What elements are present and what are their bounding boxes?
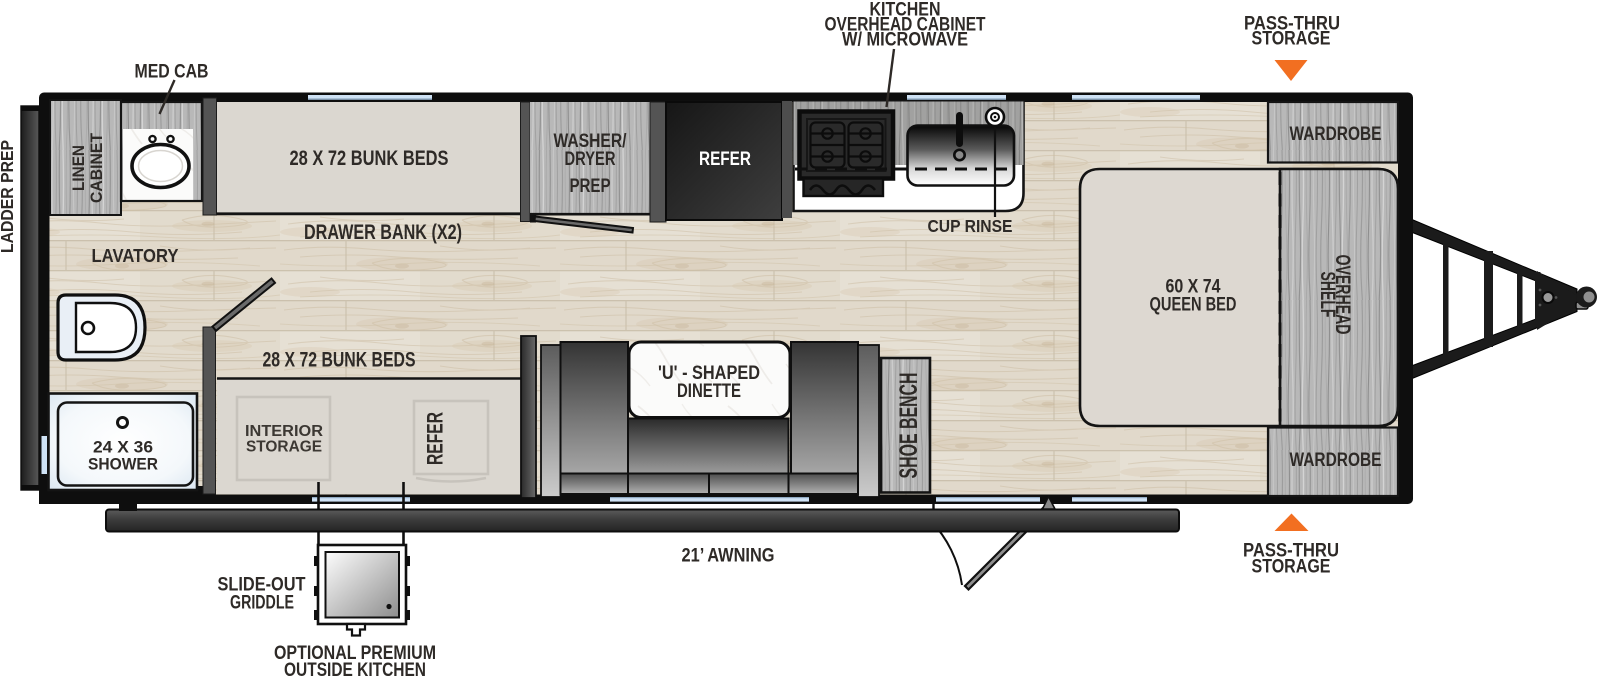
svg-text:LAVATORY: LAVATORY bbox=[92, 245, 180, 266]
svg-text:REFER: REFER bbox=[423, 412, 448, 465]
svg-text:PREP: PREP bbox=[570, 176, 611, 197]
svg-text:WARDROBE: WARDROBE bbox=[1290, 124, 1382, 145]
svg-text:MED CAB: MED CAB bbox=[135, 62, 209, 83]
svg-text:GRIDDLE: GRIDDLE bbox=[230, 593, 294, 614]
svg-text:CABINET: CABINET bbox=[87, 132, 106, 203]
svg-text:SHELF: SHELF bbox=[1316, 272, 1339, 318]
svg-text:LINEN: LINEN bbox=[69, 145, 88, 191]
svg-text:28 X 72 BUNK BEDS: 28 X 72 BUNK BEDS bbox=[290, 146, 449, 170]
svg-text:OUTSIDE KITCHEN: OUTSIDE KITCHEN bbox=[284, 660, 426, 678]
svg-text:DRYER: DRYER bbox=[565, 149, 616, 170]
svg-text:STORAGE: STORAGE bbox=[246, 439, 322, 456]
svg-text:CUP RINSE: CUP RINSE bbox=[928, 216, 1013, 236]
svg-text:STORAGE: STORAGE bbox=[1252, 29, 1331, 50]
svg-text:W/ MICROWAVE: W/ MICROWAVE bbox=[842, 30, 968, 51]
svg-text:21’ AWNING: 21’ AWNING bbox=[682, 546, 775, 567]
svg-text:DINETTE: DINETTE bbox=[677, 381, 741, 402]
svg-text:STORAGE: STORAGE bbox=[1252, 557, 1331, 578]
svg-text:LADDER PREP: LADDER PREP bbox=[0, 140, 17, 253]
svg-text:REFER: REFER bbox=[699, 149, 751, 170]
svg-text:WARDROBE: WARDROBE bbox=[1290, 450, 1382, 471]
svg-text:DRAWER BANK (X2): DRAWER BANK (X2) bbox=[304, 220, 462, 244]
svg-text:SHOE BENCH: SHOE BENCH bbox=[895, 373, 923, 479]
svg-text:QUEEN BED: QUEEN BED bbox=[1150, 295, 1237, 316]
svg-text:28 X 72 BUNK BEDS: 28 X 72 BUNK BEDS bbox=[263, 348, 416, 372]
svg-text:SHOWER: SHOWER bbox=[88, 455, 158, 474]
svg-text:INTERIOR: INTERIOR bbox=[245, 423, 323, 440]
